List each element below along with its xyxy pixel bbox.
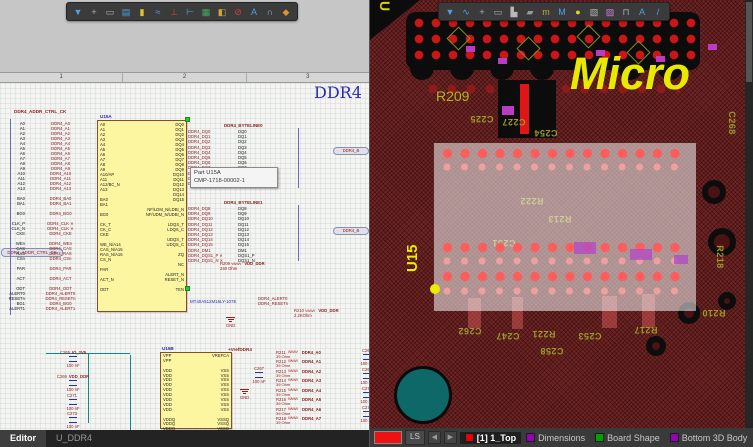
value: 100 nF — [252, 379, 265, 384]
capacitor-symbol — [363, 354, 370, 360]
silkscreen-refdes: C225 — [470, 114, 494, 124]
capacitor[interactable]: C268 100 nF — [348, 367, 370, 385]
net-label: DDR4_A1 — [302, 359, 321, 364]
toolbar-icon[interactable]: M — [555, 4, 569, 20]
layer-tab[interactable]: Board Shape — [590, 432, 665, 444]
gnd-icon — [240, 389, 249, 394]
bus-name: DDR4_BYTELINE1 — [224, 200, 336, 205]
gnd-symbol: GND — [240, 389, 249, 400]
ic-refdes: U15B — [162, 346, 174, 351]
via[interactable] — [702, 180, 726, 204]
toolbar-icon[interactable]: ▮ — [135, 4, 149, 20]
toolbar-icon[interactable]: ▼ — [443, 4, 457, 20]
net-label: DDR4_A6 — [302, 407, 321, 412]
power-flag: VDD_DDR — [318, 308, 338, 313]
capacitor[interactable]: C271 100 nF — [54, 393, 92, 411]
net-label: DDR4_A2 — [302, 369, 321, 374]
mounting-hole — [394, 366, 452, 424]
schematic-toolbar: ▼+▭▤▮≈⊥⊢▦◧⊘A∩◆ — [66, 2, 298, 21]
document-tab[interactable]: Editor — [0, 430, 46, 447]
net-label: DDR4_A3 — [302, 378, 321, 383]
toolbar-icon[interactable]: ⊓ — [619, 4, 633, 20]
toolbar-icon[interactable]: ▤ — [119, 4, 133, 20]
layer-tab[interactable]: Bottom 3D Body — [665, 432, 753, 444]
toolbar-icon[interactable]: ▙ — [507, 4, 521, 20]
silkscreen-refdes: C258 — [540, 346, 564, 356]
smd-pad — [674, 255, 688, 264]
silkscreen-refdes-u15: U15 — [404, 218, 421, 272]
toolbar-icon[interactable]: ∩ — [263, 4, 277, 20]
tooltip-line1: Part U15A — [194, 170, 274, 178]
silkscreen-refdes: C247 — [496, 331, 520, 341]
capacitor-symbol — [69, 356, 77, 362]
toolbar-icon[interactable]: ≈ — [151, 4, 165, 20]
pad-row — [442, 148, 688, 159]
refdes: C272 — [362, 405, 370, 410]
net-label: DDR4_A0 — [302, 350, 321, 355]
toolbar-icon[interactable]: ▨ — [603, 4, 617, 20]
capacitor-symbol — [363, 411, 370, 417]
ic-refdes: U15A — [100, 114, 112, 119]
refdes: C265 — [60, 350, 70, 355]
capacitor[interactable]: C273 100 nF — [54, 411, 92, 429]
layer-tab-label: Bottom 3D Body — [682, 433, 748, 443]
refdes: C267 — [254, 366, 264, 371]
silkscreen-logo: Micro — [570, 48, 690, 100]
toolbar-icon[interactable]: ⊥ — [167, 4, 181, 20]
resistor-r209[interactable]: R209 VDD_DDR 240 Ohm — [220, 261, 265, 271]
layer-color-icon — [670, 433, 679, 442]
silkscreen-refdes: R218 — [715, 245, 725, 269]
toolbar-icon[interactable]: ▰ — [523, 4, 537, 20]
value: 100 nF — [360, 361, 370, 366]
net-label: DDR4_A4 — [302, 388, 321, 393]
gnd-symbol: GND — [226, 317, 235, 328]
silkscreen-refdes: C254 — [534, 128, 558, 138]
toolbar-icon[interactable]: ● — [571, 4, 585, 20]
value: 2.2KOhm — [294, 313, 312, 318]
schematic-sheet[interactable]: DDR4 DDR4_ADDR_CTRL_CK DDR4_ADDR_CTRL_CK… — [0, 83, 370, 430]
layer-tab-label: [1] 1_Top — [477, 433, 516, 443]
bus-name: DDR4_BYTELINE0 — [224, 123, 336, 128]
value: 100 nF — [66, 363, 79, 368]
capacitor-symbol — [363, 392, 370, 398]
refdes: C271 — [67, 393, 77, 398]
selection-handle[interactable] — [185, 117, 190, 122]
smd-pad — [574, 242, 596, 254]
toolbar-icon[interactable]: ◧ — [215, 4, 229, 20]
silkscreen-refdes: R221 — [532, 329, 556, 339]
address-ctrl-rows: A0 DDR4_A0 A1 DDR4_A1 A2 DDR4_A2 A3 DDR4… — [4, 121, 96, 311]
capacitor[interactable]: C270 100 nF — [348, 386, 370, 404]
net-label[interactable]: DDR4_RESETn — [258, 301, 288, 306]
silkscreen-refdes: C253 — [578, 331, 602, 341]
silkscreen-refdes: C262 — [458, 326, 482, 336]
ic-right-pins: DQ0DQ1DQ2DQ3DQ4DQ5DQ6DQ7DQ8DQ9DQ10DQ11DQ… — [146, 122, 184, 312]
layer-tab[interactable]: Dimensions — [521, 432, 590, 444]
power-net-label[interactable]: +VrefDDR4 — [228, 347, 252, 352]
part-tooltip: Part U15A CMP-1718-00002-1 — [190, 167, 278, 188]
toolbar-icon[interactable]: A — [247, 4, 261, 20]
ruler: 123 — [0, 72, 370, 83]
toolbar-icon[interactable]: ⊘ — [231, 4, 245, 20]
silkscreen-refdes: R217 — [634, 325, 658, 335]
layer-color-icon — [526, 433, 535, 442]
refdes: C264 — [362, 348, 370, 353]
pin1-marker — [430, 284, 440, 294]
net-label: IO_2V5 — [72, 350, 86, 355]
net-label: VDD_DDR — [69, 374, 89, 379]
capacitor-symbol — [363, 373, 370, 379]
toolbar-icon[interactable]: A — [635, 4, 649, 20]
layer-color-icon — [465, 433, 474, 442]
toolbar-icon[interactable]: / — [651, 4, 665, 20]
net-row[interactable]: ALERT1 DDR4_ALERT1 — [4, 306, 96, 311]
layer-tab-label: Dimensions — [538, 433, 585, 443]
toolbar-icon[interactable]: + — [475, 4, 489, 20]
value: 100 nF — [360, 399, 370, 404]
ruler-mark: 3 — [247, 73, 370, 82]
component-highlight-mask[interactable] — [434, 143, 696, 311]
ruler-mark: 1 — [0, 73, 123, 82]
app-window: ▼+▭▤▮≈⊥⊢▦◧⊘A∩◆ 123 DDR4 DDR4_ADDR_CTRL_C… — [0, 0, 753, 447]
value: 100 nF — [66, 387, 79, 392]
next-layer-button[interactable]: ▶ — [444, 431, 457, 444]
power-flag: VDD_DDR — [244, 261, 264, 266]
net-label: DDR4_A5 — [302, 397, 321, 402]
pin-name — [146, 307, 184, 312]
capacitor[interactable]: C269VDD_DDR 100 nF — [54, 374, 92, 392]
refdes: C269 — [57, 374, 67, 379]
toolbar-icon[interactable]: ▼ — [71, 4, 85, 20]
toolbar-icon[interactable]: ▧ — [587, 4, 601, 20]
pin-stub-label: ALERT1 — [4, 306, 25, 311]
toolbar-icon[interactable]: ▭ — [103, 4, 117, 20]
pad-row — [442, 286, 688, 296]
capacitor[interactable]: C265IO_2V5 100 nF — [54, 350, 92, 368]
schematic-editor-pane[interactable]: ▼+▭▤▮≈⊥⊢▦◧⊘A∩◆ 123 DDR4 DDR4_ADDR_CTRL_C… — [0, 0, 370, 447]
capacitor-symbol — [69, 399, 77, 405]
toolbar-icon[interactable]: ◆ — [279, 4, 293, 20]
pin-name: NF/UDM_N/UDBI_N — [146, 212, 184, 217]
toolbar-icon[interactable]: + — [87, 4, 101, 20]
toolbar-icon[interactable]: ∿ — [459, 4, 473, 20]
silkscreen-refdes: R210 — [702, 308, 726, 318]
via[interactable] — [646, 336, 666, 356]
toolbar-icon[interactable]: ⊢ — [183, 4, 197, 20]
byte-lane-group-1: DDR4_BYTELINE1 DDR4_DQ8 DQ8 DDR4_DQ9 DQ9… — [188, 200, 336, 263]
layer-sets-button[interactable]: LS — [405, 430, 425, 445]
layer-tabs: [1] 1_Top Dimensions Board Shape Bottom … — [460, 432, 753, 444]
capacitor-symbol — [69, 417, 77, 423]
gnd-icon — [226, 317, 235, 322]
value: 240 Ohm — [220, 266, 237, 271]
silkscreen-refdes-r209: R209 — [436, 88, 469, 104]
refdes: C270 — [362, 386, 370, 391]
ic-part-number: MT40A512M16LY-107E — [190, 299, 236, 304]
document-tab[interactable]: U_DDR4 — [46, 430, 102, 447]
layer-status-bar: LS ◀ ▶ [1] 1_Top Dimensions Board Shape … — [370, 428, 753, 447]
port-byte0[interactable]: DDR4_B — [333, 147, 369, 155]
ic-left-pins: A0A1A2A3A4A5A6A7A8A9A10/APA11A12/BC_NA13… — [100, 122, 123, 312]
pad-row — [442, 271, 688, 282]
layer-color-icon — [595, 433, 604, 442]
value: 100 nF — [360, 418, 370, 423]
vertical-scrollbar[interactable] — [745, 0, 753, 428]
value: 100 nF — [360, 380, 370, 385]
pin-name — [100, 307, 123, 312]
port-byte1[interactable]: DDR4_B — [333, 227, 369, 235]
capacitor-symbol — [255, 372, 263, 378]
pcb-editor-pane[interactable]: U R209 Micro C225C227C254R222R213C251R21… — [370, 0, 753, 447]
resistor-r210[interactable]: R210 VDD_DDR 2.2KOhm — [294, 308, 339, 318]
toolbar-icon[interactable]: ▦ — [199, 4, 213, 20]
capacitor[interactable]: C272 100 nF — [348, 405, 370, 423]
silkscreen-refdes: C268 — [727, 111, 737, 135]
capacitor-c267[interactable]: C267 100 nF — [240, 366, 278, 384]
pin-name: VREFCA — [212, 354, 229, 359]
smd-pad — [630, 249, 652, 260]
alert-nets: DDR4_ALERT0 DDR4_RESETn — [258, 296, 288, 306]
value: 100 nF — [66, 424, 79, 429]
ic-u15a[interactable]: A0A1A2A3A4A5A6A7A8A9A10/APA11A12/BC_NA13… — [97, 120, 187, 312]
capacitor-symbol — [69, 380, 77, 386]
net-label: DDR4_A7 — [302, 416, 321, 421]
layer-tab[interactable]: [1] 1_Top — [460, 432, 521, 444]
power-wire — [130, 355, 131, 430]
capacitor[interactable]: C264 100 nF — [348, 348, 370, 366]
smd-pad — [708, 44, 717, 50]
silkscreen-glyph: U — [377, 1, 393, 11]
net-label[interactable]: DDR4_ALERT1 — [25, 306, 96, 311]
bus-label[interactable]: DDR4_ADDR_CTRL_CK — [14, 109, 66, 114]
refdes: C273 — [67, 411, 77, 416]
pcb-toolbar: ▼∿+▭▙▰mM●▧▨⊓A/ — [438, 2, 670, 21]
scrollbar-thumb[interactable] — [746, 2, 752, 82]
refdes: C268 — [362, 367, 370, 372]
document-tab-bar: EditorU_DDR4 — [0, 430, 370, 447]
ruler-mark: 2 — [123, 73, 246, 82]
selection-handle[interactable] — [185, 286, 190, 291]
smd-pad — [498, 58, 507, 64]
prev-layer-button[interactable]: ◀ — [428, 431, 441, 444]
toolbar-icon[interactable]: ▭ — [491, 4, 505, 20]
tooltip-line2: CMP-1718-00002-1 — [194, 178, 274, 186]
layer-tab-label: Board Shape — [607, 433, 660, 443]
smd-pad — [502, 106, 514, 115]
pad-row — [442, 162, 688, 172]
toolbar-icon[interactable]: m — [539, 4, 553, 20]
sheet-title: DDR4 — [314, 83, 362, 102]
smd-pad — [466, 46, 475, 52]
active-layer-color-swatch[interactable] — [374, 431, 402, 444]
silkscreen-refdes: C227 — [502, 117, 526, 127]
ic-u15b[interactable]: VPPVPPVDDVDDVDDVDDVDDVDDVDDVDDVDDVDDQVDD… — [160, 352, 232, 429]
